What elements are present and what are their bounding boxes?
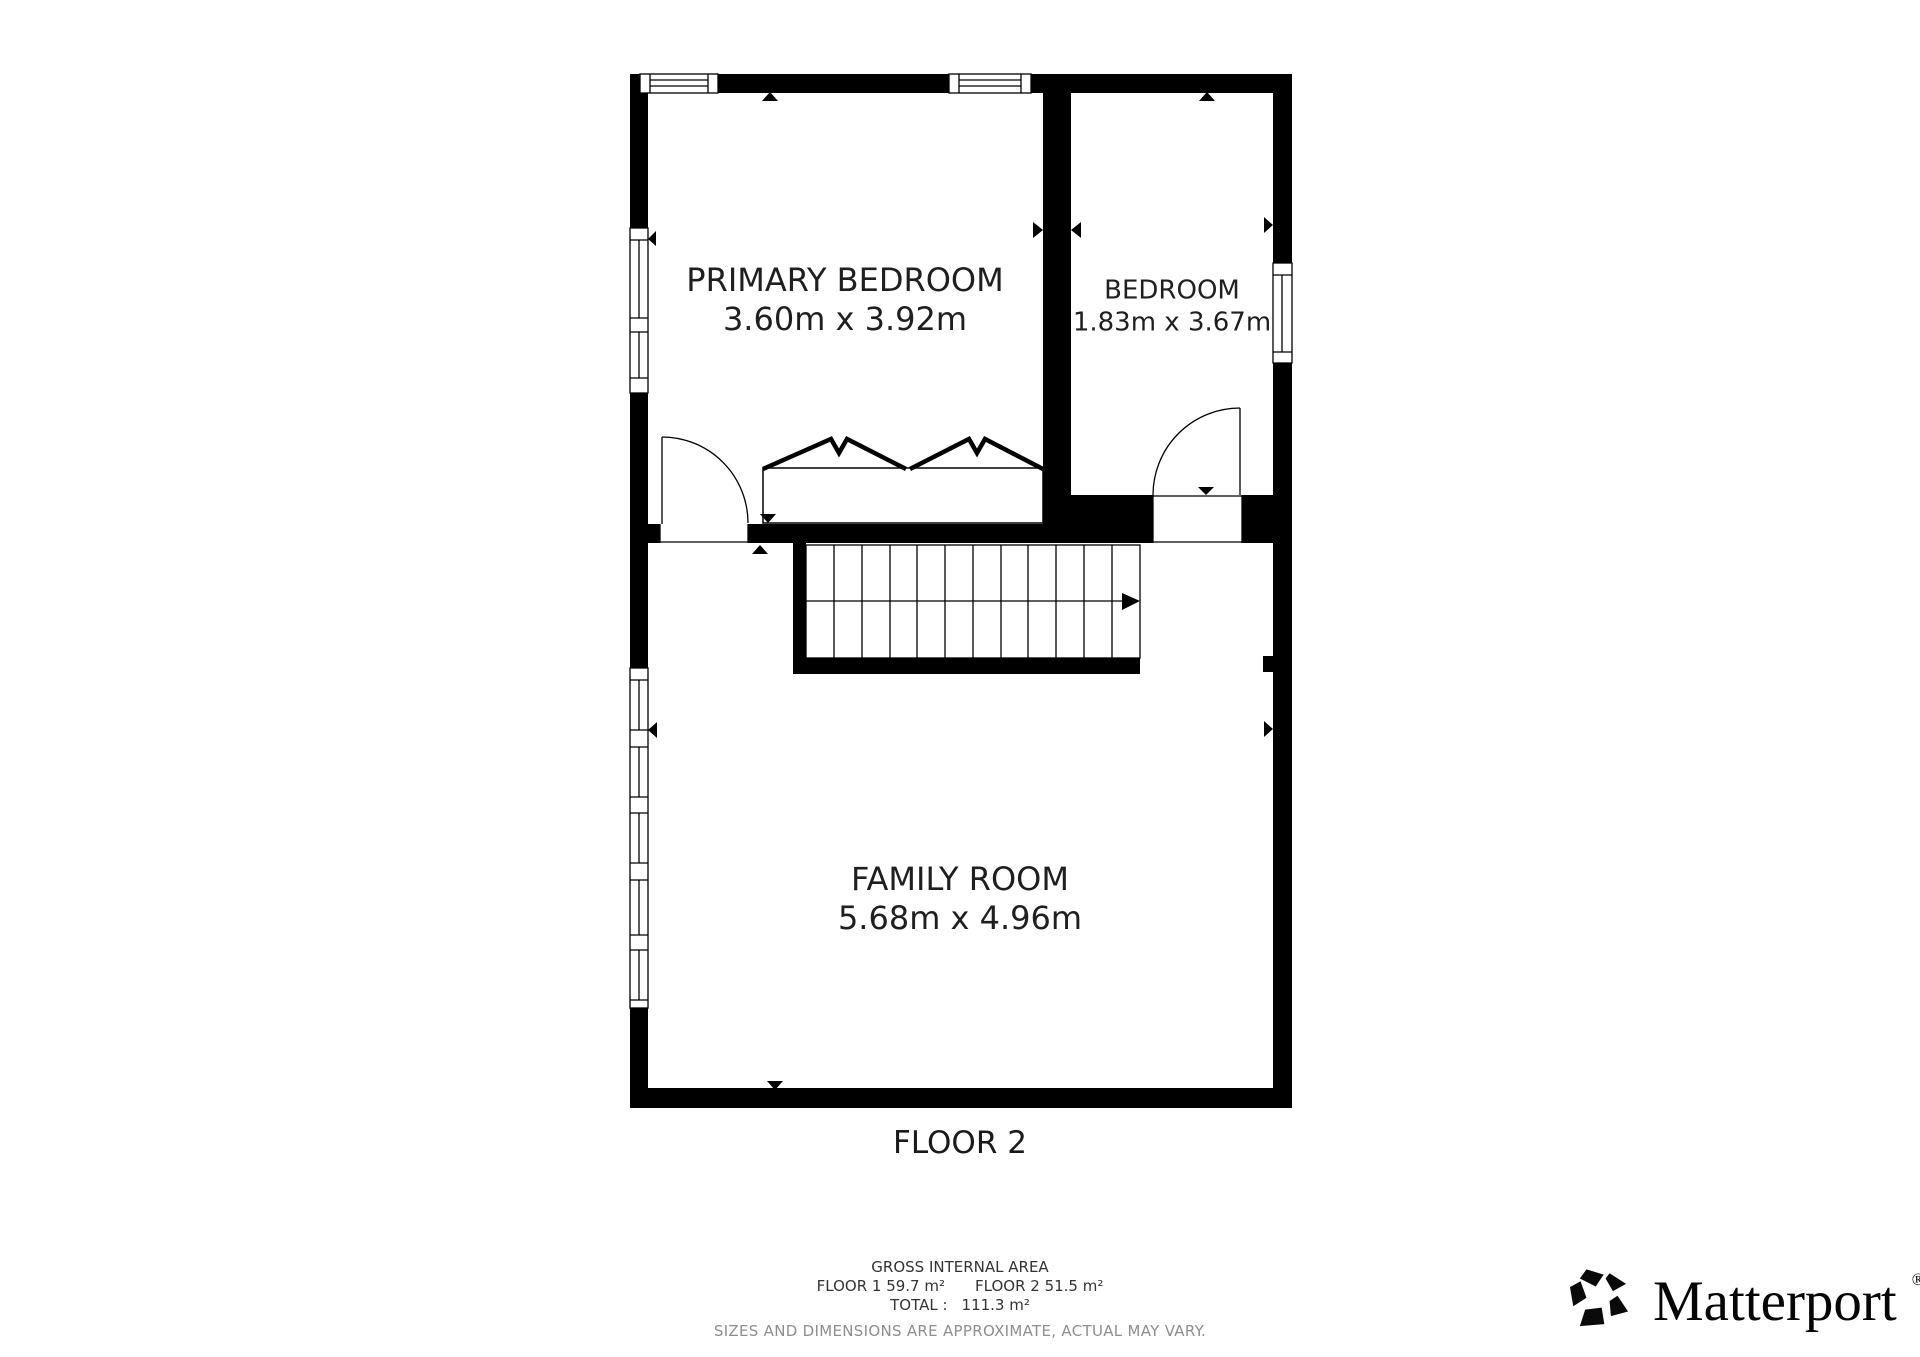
door-bedroom xyxy=(1153,408,1242,543)
bed xyxy=(763,439,1043,523)
camera-position-icon xyxy=(1199,92,1215,101)
camera-position-icon xyxy=(752,545,768,554)
camera-position-icon xyxy=(762,92,778,101)
floor2-area: FLOOR 2 51.5 m² xyxy=(975,1277,1103,1296)
total-label: TOTAL : xyxy=(890,1296,947,1315)
window-right-bedroom xyxy=(1273,263,1292,363)
wall-stairs-left xyxy=(793,543,806,674)
wall-stub-right xyxy=(1263,656,1273,672)
area-summary: GROSS INTERNAL AREA FLOOR 1 59.7 m² FLOO… xyxy=(714,1258,1206,1341)
room-name: FAMILY ROOM xyxy=(838,860,1082,899)
pillow-right xyxy=(910,439,1043,469)
wall-bedroom-divider xyxy=(1043,93,1071,543)
floorplan-page: PRIMARY BEDROOM 3.60m x 3.92m BEDROOM 1.… xyxy=(0,0,1920,1357)
camera-position-icon xyxy=(1264,217,1273,233)
window-left-family xyxy=(630,668,648,1008)
room-name: PRIMARY BEDROOM xyxy=(686,261,1003,300)
camera-position-icon xyxy=(1033,222,1043,238)
window-left-primary xyxy=(630,228,648,393)
floor1-area: FLOOR 1 59.7 m² xyxy=(817,1277,945,1296)
registered-trademark: ® xyxy=(1912,1270,1920,1290)
window-top-left xyxy=(640,74,718,93)
camera-position-icon xyxy=(1071,222,1081,238)
matterport-wordmark: Matterport xyxy=(1653,1273,1897,1330)
staircase xyxy=(806,545,1140,658)
matterport-logo: Matterport ® xyxy=(1562,1268,1920,1334)
total-value: 111.3 m² xyxy=(962,1296,1030,1315)
room-dimensions: 3.60m x 3.92m xyxy=(686,300,1003,339)
room-name: BEDROOM xyxy=(1073,275,1271,307)
window-top-right xyxy=(949,74,1031,93)
wall-stairs-bottom xyxy=(793,658,1140,674)
room-dimensions: 5.68m x 4.96m xyxy=(838,899,1082,938)
disclaimer-text: SIZES AND DIMENSIONS ARE APPROXIMATE, AC… xyxy=(714,1322,1206,1341)
camera-position-icon xyxy=(1198,487,1214,495)
room-dimensions: 1.83m x 3.67m xyxy=(1073,307,1271,339)
area-summary-title: GROSS INTERNAL AREA xyxy=(714,1258,1206,1277)
door-primary-bedroom xyxy=(660,437,748,543)
camera-position-icon xyxy=(648,231,656,246)
pillow-left xyxy=(763,439,906,469)
total-area-row: TOTAL : 111.3 m² xyxy=(714,1296,1206,1315)
room-label-primary-bedroom: PRIMARY BEDROOM 3.60m x 3.92m xyxy=(686,261,1003,339)
room-label-family-room: FAMILY ROOM 5.68m x 4.96m xyxy=(838,860,1082,938)
matterport-pinwheel-icon xyxy=(1562,1268,1640,1334)
wall-bottom xyxy=(630,1088,1292,1108)
wall-right xyxy=(1273,74,1292,1108)
room-label-bedroom: BEDROOM 1.83m x 3.67m xyxy=(1073,275,1271,338)
camera-position-icon xyxy=(1264,721,1273,737)
floor-title: FLOOR 2 xyxy=(893,1125,1027,1163)
camera-position-icon xyxy=(648,722,657,738)
floor-areas-row: FLOOR 1 59.7 m² FLOOR 2 51.5 m² xyxy=(714,1277,1206,1296)
